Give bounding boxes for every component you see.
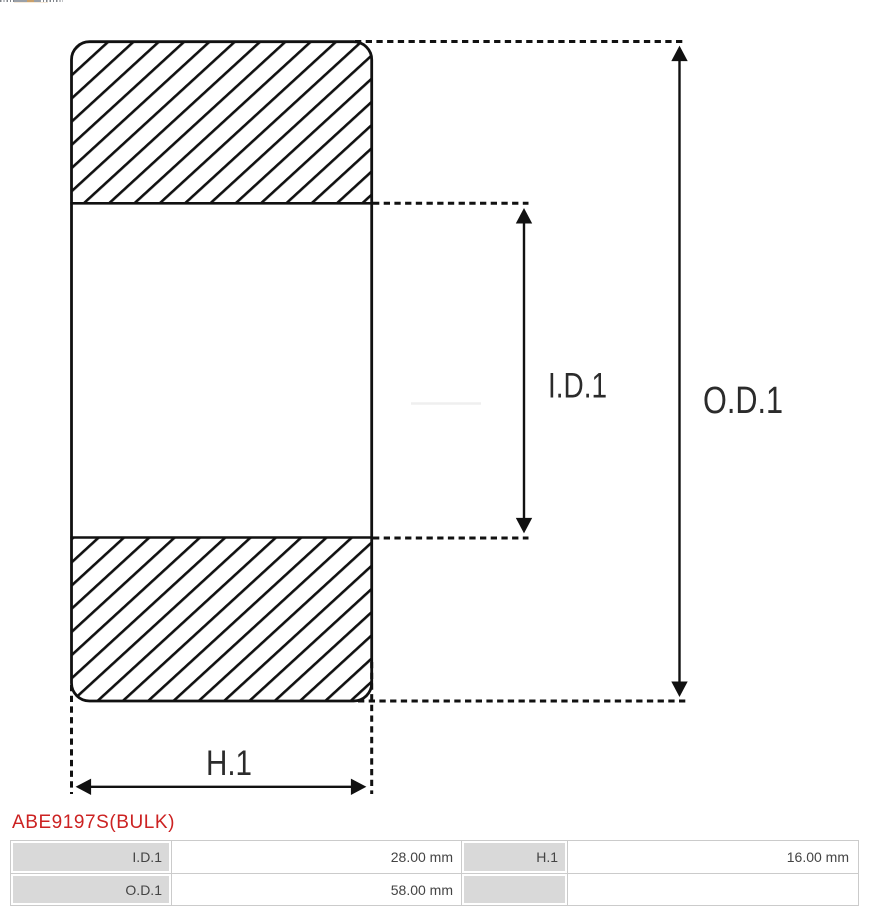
svg-text:O.D.1: O.D.1	[703, 380, 783, 422]
svg-text:H.1: H.1	[206, 744, 252, 783]
svg-text:I.D.1: I.D.1	[548, 367, 607, 406]
